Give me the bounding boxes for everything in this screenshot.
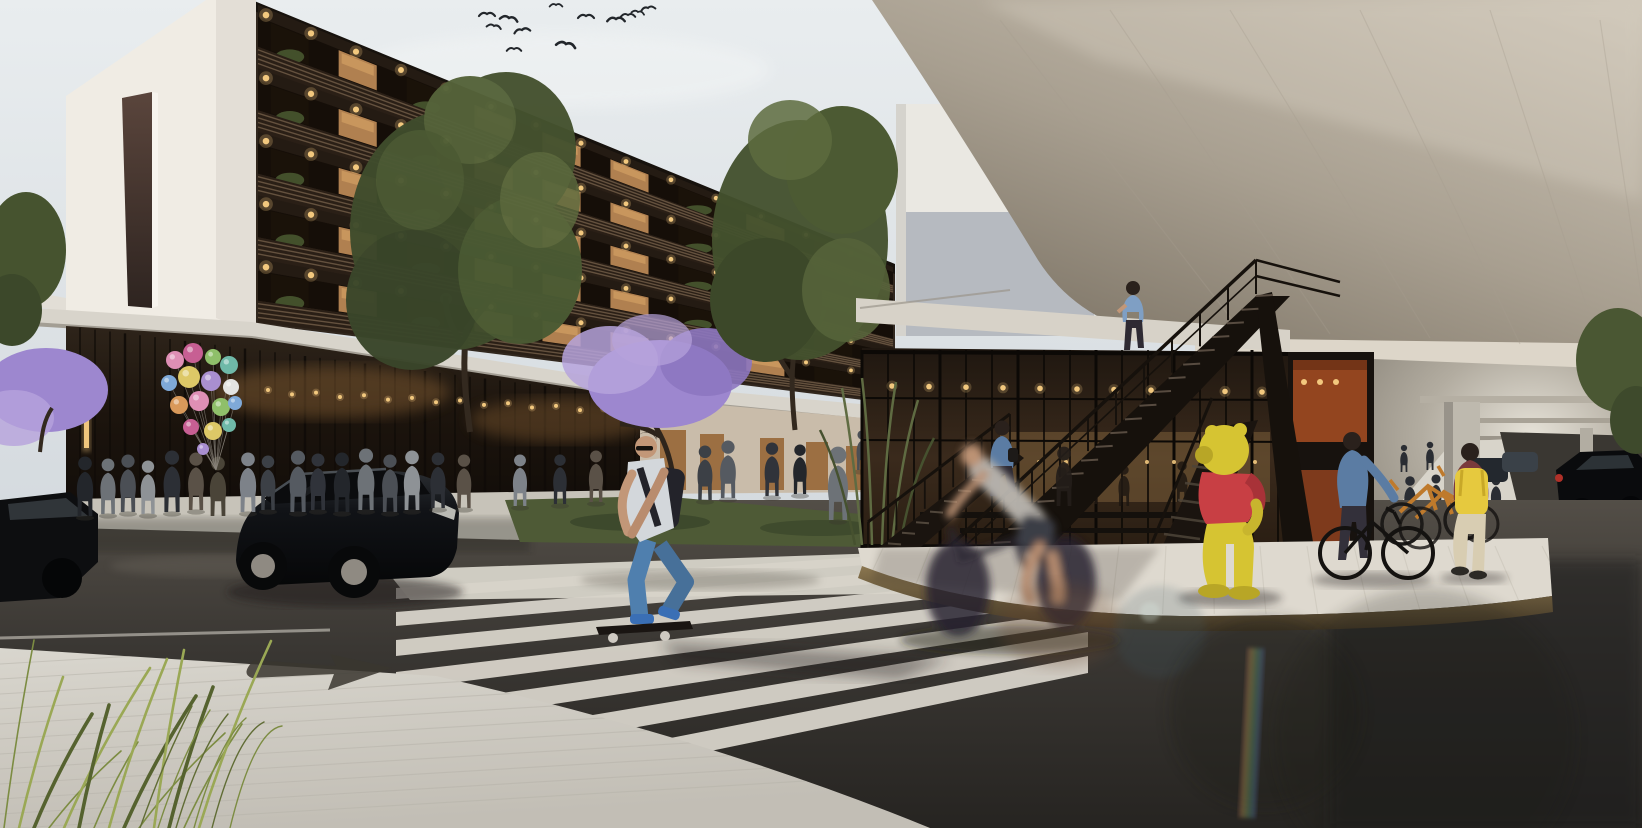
string-light-bulb: [386, 398, 390, 402]
figure-shadow: [791, 493, 809, 498]
ceiling-light: [353, 49, 359, 55]
tread: [1154, 391, 1171, 392]
ceiling-light: [263, 138, 270, 145]
timber-door: [806, 442, 828, 490]
head: [1343, 432, 1361, 450]
ceiling-light: [578, 141, 583, 146]
sneaker: [630, 614, 654, 624]
skateboard-wheel: [608, 633, 618, 643]
figure-shadow: [139, 513, 157, 518]
balloon: [223, 379, 239, 395]
balloon-highlight: [208, 425, 213, 430]
hanging-bulb: [926, 384, 932, 390]
tread: [1037, 501, 1054, 502]
balloon-highlight: [224, 359, 229, 364]
slot-window-reveal: [152, 92, 158, 308]
hanging-bulb: [1148, 387, 1154, 393]
ceiling-light: [578, 230, 583, 235]
tread: [888, 543, 901, 544]
balloon: [212, 398, 230, 416]
balloon: [183, 343, 203, 363]
mascot-foot: [1198, 584, 1230, 598]
ceiling-light: [669, 177, 674, 182]
figure-shadow: [829, 519, 847, 524]
figure-shadow: [719, 497, 737, 502]
figure-shadow: [429, 507, 447, 512]
ceiling-light: [669, 257, 674, 262]
ceiling-light: [263, 75, 270, 82]
balloon-highlight: [164, 378, 169, 383]
mascot-muzzle: [1195, 446, 1213, 464]
hanging-bulb: [1000, 385, 1006, 391]
rendering-canvas: [0, 0, 1642, 828]
figure-shadow: [99, 513, 117, 518]
figure-shadow: [119, 511, 137, 516]
balloon: [178, 366, 200, 388]
puddle: [580, 570, 820, 590]
hanging-bulb: [1253, 460, 1257, 464]
tread: [1096, 446, 1113, 447]
figure-shadow: [289, 511, 307, 516]
balloon: [183, 419, 199, 435]
tread: [1169, 377, 1186, 378]
tread: [902, 533, 915, 534]
figure-shadow: [455, 507, 473, 512]
ceiling-light: [308, 151, 314, 157]
ceiling-light: [353, 106, 359, 112]
tread: [1198, 350, 1215, 351]
figure-shadow: [587, 501, 605, 506]
cyclist-head: [961, 445, 983, 467]
balloon: [222, 418, 236, 432]
balloon-highlight: [216, 401, 221, 406]
balloon-highlight: [187, 347, 193, 353]
balloon-highlight: [231, 398, 235, 402]
interior-glow: [210, 366, 450, 418]
ceiling-light: [804, 360, 808, 364]
balloon: [204, 422, 222, 440]
tread: [1125, 418, 1142, 419]
ceiling-light: [624, 159, 629, 164]
ceiling-light: [353, 164, 359, 170]
ceiling-light: [624, 201, 629, 206]
figure-shadow: [239, 511, 257, 516]
tread: [1256, 295, 1273, 296]
shoulder-bag: [1008, 448, 1018, 462]
balloon-highlight: [199, 445, 203, 449]
figure-shadow: [551, 503, 569, 508]
balloon-highlight: [182, 370, 189, 377]
balloon: [166, 351, 184, 369]
mascot-foot: [1228, 586, 1260, 600]
ceiling-light: [669, 217, 674, 222]
hanging-bulb: [1172, 460, 1176, 464]
string-light-bulb: [458, 399, 462, 403]
string-light-bulb: [362, 393, 366, 397]
balloon-highlight: [193, 395, 199, 401]
architectural-rendering: [0, 0, 1642, 828]
figure-shadow: [511, 505, 529, 510]
mascot-ear: [1233, 423, 1247, 437]
string-light-bulb: [578, 408, 582, 412]
balloon: [228, 396, 242, 410]
string-light-bulb: [410, 396, 414, 400]
string-light-bulb: [314, 391, 318, 395]
balloon: [197, 443, 209, 455]
balloon-highlight: [205, 375, 211, 381]
ceiling-light: [263, 12, 270, 19]
hanging-bulb: [963, 384, 969, 390]
hanging-bulb: [1145, 460, 1149, 464]
head: [1461, 443, 1479, 461]
sunglasses: [636, 446, 653, 451]
figure-shadow: [696, 499, 714, 504]
balloon: [189, 391, 209, 411]
tread: [1241, 309, 1258, 310]
figure-shadow: [403, 509, 421, 514]
string-light-bulb: [434, 400, 438, 404]
ceiling-light: [849, 368, 853, 372]
ceiling-light: [263, 264, 270, 271]
balloon-highlight: [186, 422, 191, 427]
tread: [1110, 432, 1127, 433]
tread: [1227, 322, 1244, 323]
balloon: [205, 349, 221, 365]
balloon: [170, 396, 188, 414]
string-light-bulb: [482, 403, 486, 407]
shoe: [1469, 571, 1487, 580]
tread: [1183, 364, 1200, 365]
ceiling-light: [308, 272, 314, 278]
ceiling-light: [308, 211, 314, 217]
hanging-bulb: [1074, 386, 1080, 392]
tread: [1212, 336, 1229, 337]
hanging-bulb: [1259, 389, 1265, 395]
figure-shadow: [357, 509, 375, 514]
ceiling-light: [669, 297, 674, 302]
balloon-highlight: [170, 354, 175, 359]
string-light-bulb: [506, 401, 510, 405]
string-light-bulb: [290, 392, 294, 396]
balloon: [161, 375, 177, 391]
figure-shadow: [76, 515, 94, 520]
balloon: [201, 371, 221, 391]
tread: [916, 522, 929, 523]
ceiling-light: [624, 286, 629, 291]
figure-shadow: [309, 509, 327, 514]
balloon: [220, 356, 238, 374]
tread: [1139, 405, 1156, 406]
ceiling-light: [578, 186, 583, 191]
tread: [1081, 460, 1098, 461]
string-light-bulb: [338, 395, 342, 399]
figure-shadow: [259, 509, 277, 514]
shoe: [1451, 567, 1469, 576]
string-light-bulb: [554, 404, 558, 408]
tread: [930, 512, 943, 513]
ceiling-light: [308, 30, 314, 36]
mascot-ear: [1205, 425, 1219, 439]
hanging-bulb: [1037, 386, 1043, 392]
string-light-bulb: [530, 406, 534, 410]
ceiling-light: [263, 201, 270, 208]
ceiling-light: [308, 91, 314, 97]
figure-shadow: [187, 509, 205, 514]
ceiling-light: [624, 244, 629, 249]
ceiling-light: [578, 320, 583, 325]
figure-shadow: [381, 511, 399, 516]
figure-shadow: [333, 511, 351, 516]
hanging-bulb: [1222, 389, 1228, 395]
ceiling-light: [398, 67, 404, 73]
string-light-bulb: [266, 388, 270, 392]
balloon-highlight: [226, 382, 231, 387]
balloon-highlight: [208, 352, 213, 357]
balloon-highlight: [174, 399, 179, 404]
figure-shadow: [763, 495, 781, 500]
skateboard-wheel: [660, 631, 670, 641]
figure-shadow: [163, 511, 181, 516]
balloon-highlight: [225, 420, 229, 424]
